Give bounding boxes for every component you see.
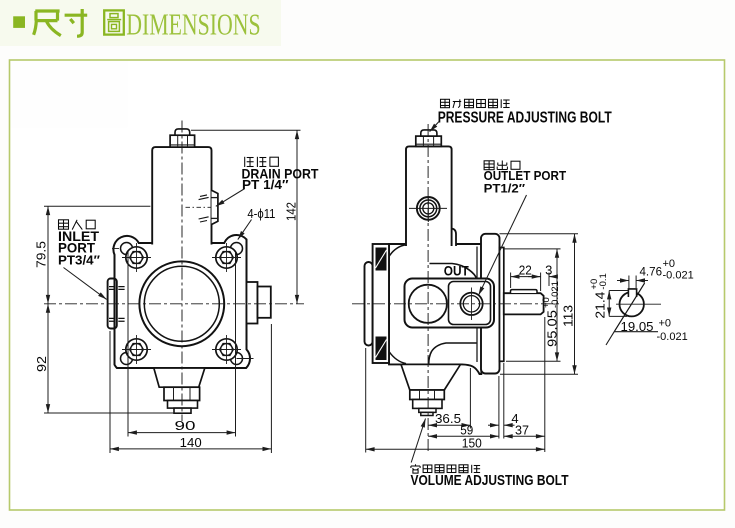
svg-text:3: 3 xyxy=(545,263,552,278)
svg-text:90: 90 xyxy=(175,418,196,433)
svg-text:140: 140 xyxy=(180,435,202,450)
svg-text:-0.021: -0.021 xyxy=(657,331,688,343)
svg-text:92: 92 xyxy=(34,356,49,372)
svg-text:150: 150 xyxy=(462,435,482,450)
svg-text:PT 1/4′′: PT 1/4′′ xyxy=(242,178,289,192)
svg-text:113: 113 xyxy=(561,305,576,327)
svg-text:-0.021: -0.021 xyxy=(550,281,561,308)
svg-text:PT3/4′′: PT3/4′′ xyxy=(58,253,100,267)
svg-text:-0.021: -0.021 xyxy=(663,269,694,281)
svg-text:VOLUME ADJUSTING BOLT: VOLUME ADJUSTING BOLT xyxy=(411,472,569,489)
svg-text:OUT: OUT xyxy=(444,264,470,279)
svg-text:21.4: 21.4 xyxy=(592,292,607,319)
svg-text:37: 37 xyxy=(515,423,529,438)
svg-text:+0: +0 xyxy=(659,318,672,330)
svg-text:22: 22 xyxy=(519,263,532,278)
svg-text:4-ϕ11: 4-ϕ11 xyxy=(247,206,275,221)
svg-text:DIMENSIONS: DIMENSIONS xyxy=(126,7,261,42)
svg-text:36.5: 36.5 xyxy=(435,411,461,426)
svg-text:79.5: 79.5 xyxy=(34,241,49,268)
svg-text:142: 142 xyxy=(284,202,299,221)
svg-text:95.05: 95.05 xyxy=(545,310,560,347)
svg-text:+0: +0 xyxy=(663,258,676,270)
svg-text:19.05: 19.05 xyxy=(621,319,654,334)
svg-text:-0.1: -0.1 xyxy=(598,273,609,289)
svg-text:4.76: 4.76 xyxy=(640,265,663,279)
svg-text:PRESSURE ADJUSTING BOLT: PRESSURE ADJUSTING BOLT xyxy=(438,110,612,127)
svg-text:PT1/2′′: PT1/2′′ xyxy=(484,182,526,196)
